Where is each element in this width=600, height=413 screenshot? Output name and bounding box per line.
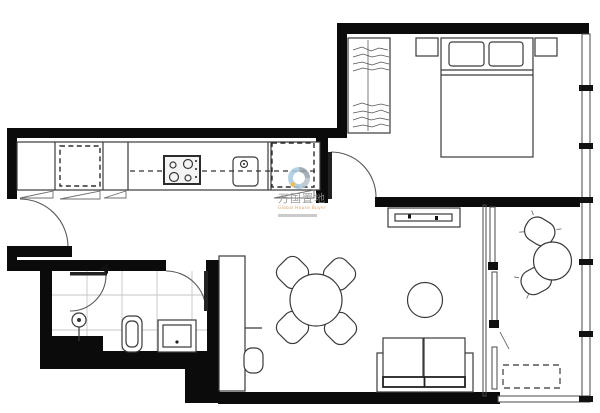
wardrobe: [348, 38, 390, 133]
balcony-bottom-edge: [498, 396, 590, 402]
wall-bottom-main: [218, 392, 500, 404]
nightstand-left: [416, 38, 438, 56]
wall-bathroom-left: [40, 260, 52, 340]
floor-plan-drawing: [0, 0, 600, 413]
sofa: [377, 338, 473, 392]
desk-chair: [244, 348, 263, 373]
wall-living-top: [375, 197, 580, 207]
bathroom-door: [166, 271, 208, 311]
nightstand-right: [535, 38, 557, 56]
tv-console: [388, 208, 460, 227]
sliding-balcony-door: [483, 205, 509, 396]
wall-bedroom-left: [337, 23, 347, 138]
washbasin: [158, 320, 196, 352]
toilet: [122, 316, 142, 352]
double-bed: [441, 38, 533, 157]
living-dining: [219, 208, 473, 392]
dining-set: [273, 253, 361, 349]
cabinet-door-marks: [20, 190, 314, 199]
wall-bedroom-top: [337, 23, 589, 34]
ac-unit-dashed: [503, 365, 560, 388]
wall-bathroom-top: [7, 260, 166, 271]
kitchen: [17, 142, 320, 199]
balcony: [503, 210, 572, 388]
balcony-table: [534, 242, 572, 280]
sofa-cushion-right: [424, 338, 465, 378]
wall-left-upper: [7, 128, 17, 199]
cooktop: [164, 156, 200, 184]
wall-step-piece: [185, 364, 220, 403]
sofa-cushion-left: [383, 338, 423, 378]
wall-kitchen-top: [7, 128, 347, 138]
wall-bathroom-block: [40, 336, 103, 369]
round-rug: [408, 283, 443, 318]
entry-door: [17, 199, 72, 257]
entry-door-leaf: [17, 246, 72, 257]
dining-table: [290, 274, 342, 326]
floor-plan-image: 万国置地 Global House Buyer: [0, 0, 600, 413]
bedroom: [328, 38, 557, 199]
bedroom-door: [328, 152, 376, 199]
